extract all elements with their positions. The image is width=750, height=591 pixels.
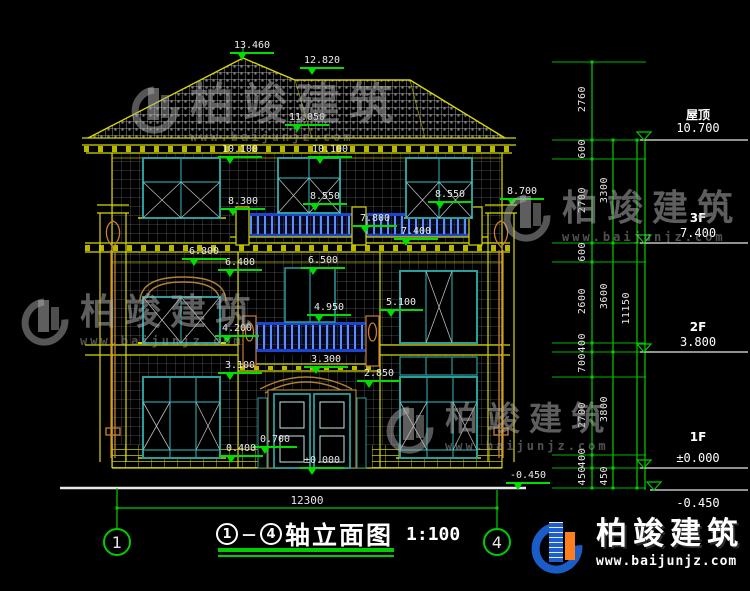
level-value: ±0.000 (650, 451, 746, 465)
elevation-value: 0.400 (219, 443, 263, 454)
elevation-value: 6.800 (182, 246, 226, 257)
dim-label: 2760 (577, 86, 588, 112)
elevation-marker: 4.200 (215, 323, 259, 337)
elevation-symbol (219, 455, 263, 457)
elevation-value: 7.800 (353, 213, 397, 224)
elevation-symbol (308, 156, 352, 158)
dim-label: 3800 (599, 396, 610, 422)
title-axis-end: 4 (260, 523, 282, 545)
elevation-symbol (221, 208, 265, 210)
elevation-symbol (285, 124, 329, 126)
elevation-symbol (301, 267, 345, 269)
dim-label: 400 (577, 448, 588, 468)
dim-label: 600 (577, 139, 588, 159)
elevation-value: 4.950 (307, 302, 351, 313)
elevation-value: 8.550 (428, 189, 472, 200)
elevation-value: 3.300 (304, 354, 348, 365)
elevation-symbol (353, 225, 397, 227)
elevation-symbol (304, 366, 348, 368)
elevation-marker: 3.100 (218, 360, 262, 374)
axis-number: 1 (112, 533, 122, 552)
title-text: 轴立面图 (285, 516, 393, 552)
dim-label: 450 (577, 466, 588, 486)
elevation-marker: 7.400 (394, 226, 438, 240)
brand-logo-icon (528, 518, 586, 578)
brand-text: 柏竣建筑 (596, 518, 744, 551)
level-name: 3F (650, 211, 746, 225)
brand-url: www.baijunjz.com (596, 554, 744, 569)
elevation-value: 8.700 (500, 186, 544, 197)
elevation-marker: -0.450 (506, 470, 550, 484)
drawing-title: 1 － 4 轴立面图 1:100 (216, 516, 460, 552)
elevation-symbol (300, 467, 344, 469)
elevation-value: 3.100 (218, 360, 262, 371)
elevation-symbol (428, 201, 472, 203)
title-underline-thin (218, 555, 394, 557)
title-axis-start: 1 (216, 523, 238, 545)
elevation-marker: 6.500 (301, 255, 345, 269)
title-scale: 1:100 (406, 524, 460, 545)
axis-number: 4 (492, 533, 502, 552)
elevation-symbol (506, 482, 550, 484)
elevation-marker: 6.400 (218, 257, 262, 271)
elevation-value: ±0.000 (300, 455, 344, 466)
dim-label: 3600 (599, 283, 610, 309)
elevation-value: 12.820 (300, 55, 344, 66)
elevation-marker: 4.950 (307, 302, 351, 316)
elevation-symbol (394, 238, 438, 240)
overall-width-dim: 12300 (277, 494, 337, 507)
elevation-value: 2.850 (357, 368, 401, 379)
dim-label: 700 (577, 353, 588, 373)
elevation-symbol (218, 156, 262, 158)
level-value: -0.450 (650, 496, 746, 510)
elevation-marker: 7.800 (353, 213, 397, 227)
level-value: 10.700 (650, 121, 746, 135)
level-name: 2F (650, 320, 746, 334)
elevation-symbol (303, 203, 347, 205)
elevation-marker: 10.100 (308, 144, 352, 158)
elevation-symbol (307, 314, 351, 316)
elevation-symbol (230, 52, 274, 54)
axis-bubble-4: 4 (483, 528, 511, 556)
elevation-symbol (300, 67, 344, 69)
elevation-value: 8.550 (303, 191, 347, 202)
elevation-marker: 13.460 (230, 40, 274, 54)
elevation-value: 6.500 (301, 255, 345, 266)
dim-label: 450 (599, 466, 610, 486)
elevation-value: 5.100 (379, 297, 423, 308)
elevation-symbol (215, 335, 259, 337)
windows-3f (143, 158, 472, 218)
elevation-marker: 2.850 (357, 368, 401, 382)
elevation-linework (0, 0, 750, 591)
elevation-marker: 3.300 (304, 354, 348, 368)
brand-logo: 柏竣建筑 www.baijunjz.com (528, 518, 744, 578)
elevation-marker: 8.550 (428, 189, 472, 203)
dim-label: 400 (577, 333, 588, 353)
dim-label: 2600 (577, 288, 588, 314)
axis-bubble-1: 1 (103, 528, 131, 556)
elevation-value: 13.460 (230, 40, 274, 51)
elevation-marker: 8.700 (500, 186, 544, 200)
title-dash: － (241, 522, 257, 546)
elevation-marker: 12.820 (300, 55, 344, 69)
dim-label: 2700 (577, 402, 588, 428)
elevation-symbol (500, 198, 544, 200)
elevation-marker: 5.100 (379, 297, 423, 311)
elevation-symbol (379, 309, 423, 311)
elevation-value: 4.200 (215, 323, 259, 334)
elevation-value: -0.450 (506, 470, 550, 481)
dim-label: 2700 (577, 187, 588, 213)
level-value: 3.800 (650, 335, 746, 349)
title-underline-thick (218, 548, 394, 552)
elevation-value: 10.100 (308, 144, 352, 155)
elevation-marker: 10.100 (218, 144, 262, 158)
elevation-value: 11.050 (285, 112, 329, 123)
elevation-marker: ±0.000 (300, 455, 344, 469)
cad-elevation-canvas: 13.460 12.820 11.050 10.100 10.100 8.300… (0, 0, 750, 591)
elevation-marker: 0.400 (219, 443, 263, 457)
elevation-symbol (218, 372, 262, 374)
elevation-value: 6.400 (218, 257, 262, 268)
level-name: 1F (650, 430, 746, 444)
elevation-value: 8.300 (221, 196, 265, 207)
elevation-marker: 11.050 (285, 112, 329, 126)
elevation-marker: 8.550 (303, 191, 347, 205)
level-value: 7.400 (650, 226, 746, 240)
elevation-value: 7.400 (394, 226, 438, 237)
elevation-symbol (357, 380, 401, 382)
elevation-symbol (218, 269, 262, 271)
dim-label: 3300 (599, 177, 610, 203)
elevation-marker: 8.300 (221, 196, 265, 210)
dim-label: 600 (577, 242, 588, 262)
elevation-value: 10.100 (218, 144, 262, 155)
dim-label-total: 11150 (621, 292, 632, 325)
